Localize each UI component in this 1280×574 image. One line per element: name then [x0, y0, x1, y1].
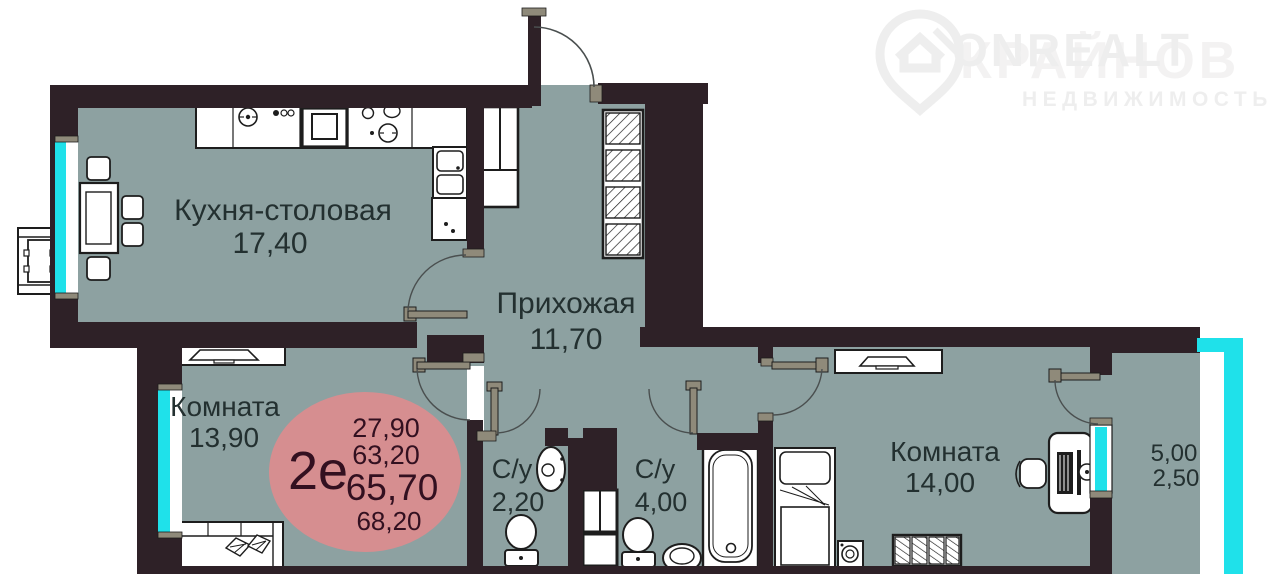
- room2-area: 14,00: [905, 467, 975, 498]
- hall-wardrobe: [603, 110, 643, 258]
- bed-pillow: [780, 452, 830, 484]
- wall: [137, 566, 1112, 574]
- toilet-icon: [505, 515, 538, 566]
- wall: [697, 433, 758, 450]
- wall: [467, 420, 483, 566]
- chair: [122, 223, 143, 246]
- door-leaf: [417, 362, 470, 369]
- door-leaf: [1055, 373, 1100, 380]
- wall: [758, 420, 773, 566]
- wc-small-label: С/у: [492, 454, 533, 484]
- sofa: [165, 522, 283, 569]
- tv-stand: [835, 350, 942, 373]
- watermark-brand: ONREALT: [952, 24, 1192, 76]
- wc-big-area: 4,00: [635, 487, 688, 517]
- bed: [775, 448, 835, 568]
- floor-plan-page: КРАЙНОВ ONREALT НЕДВИЖИМОСТЬ: [0, 0, 1280, 574]
- floor-plan: КРАЙНОВ ONREALT НЕДВИЖИМОСТЬ: [0, 0, 1280, 574]
- toilet-icon: [622, 518, 655, 567]
- shaft-cabinet: [583, 490, 617, 566]
- hall-label: Прихожая: [496, 287, 635, 320]
- chair: [122, 196, 143, 219]
- kitchen-window: [55, 136, 78, 299]
- watermark-category: НЕДВИЖИМОСТЬ: [1022, 88, 1273, 111]
- wall: [50, 322, 417, 348]
- balcony-glazing: [1197, 338, 1243, 574]
- wc-big-label: С/у: [635, 454, 676, 484]
- hall-area: 11,70: [530, 323, 603, 356]
- desk-chair: [1020, 459, 1046, 488]
- kitchen-area: 17,40: [232, 227, 307, 260]
- wc-small-area: 2,20: [492, 487, 545, 517]
- door-leaf: [408, 311, 467, 318]
- wall: [640, 327, 1095, 347]
- wall: [467, 103, 484, 253]
- washing-machine-icon: [838, 541, 863, 567]
- room1-label: Комната: [170, 391, 280, 422]
- area-badge: 2е 27,90 63,20 65,70 68,20: [269, 392, 461, 552]
- chair: [87, 157, 110, 180]
- wall: [568, 438, 583, 566]
- washbasin-icon: [537, 447, 565, 491]
- wall: [1090, 493, 1112, 574]
- balcony-door-gap-floor: [1090, 375, 1112, 425]
- badge-type-label: 2е: [288, 441, 348, 501]
- room2-door-gap-floor: [758, 363, 773, 420]
- wall: [1090, 347, 1112, 375]
- bathtub-icon: [703, 443, 758, 568]
- room2-balcony-window: [1090, 418, 1112, 498]
- keyboard-icon: [1057, 452, 1073, 494]
- room1-area: 13,90: [189, 422, 259, 453]
- wall: [50, 85, 532, 108]
- badge-area-2: 63,20: [352, 440, 420, 470]
- oven-icon: [302, 108, 347, 147]
- wall: [583, 428, 617, 490]
- hall-niche-floor: [484, 347, 758, 445]
- badge-area-4: 68,20: [356, 506, 421, 536]
- sink-cabinet-icon: [432, 147, 467, 240]
- wall: [545, 428, 568, 446]
- badge-area-3: 65,70: [346, 467, 439, 508]
- wardrobe: [893, 535, 961, 566]
- balcony-area-reduced: 2,50: [1153, 465, 1200, 492]
- bed-blanket: [781, 507, 829, 565]
- door-leaf: [772, 362, 823, 369]
- badge-area-1: 27,90: [352, 413, 420, 443]
- hall-cabinet: [482, 107, 518, 207]
- room2-label: Комната: [890, 436, 1000, 467]
- chair: [87, 257, 110, 280]
- door-leaf: [690, 388, 697, 434]
- kitchen-label: Кухня-столовая: [174, 194, 392, 227]
- wall: [645, 85, 703, 347]
- balcony-area-full: 5,00: [1151, 440, 1198, 467]
- door-leaf: [491, 388, 498, 435]
